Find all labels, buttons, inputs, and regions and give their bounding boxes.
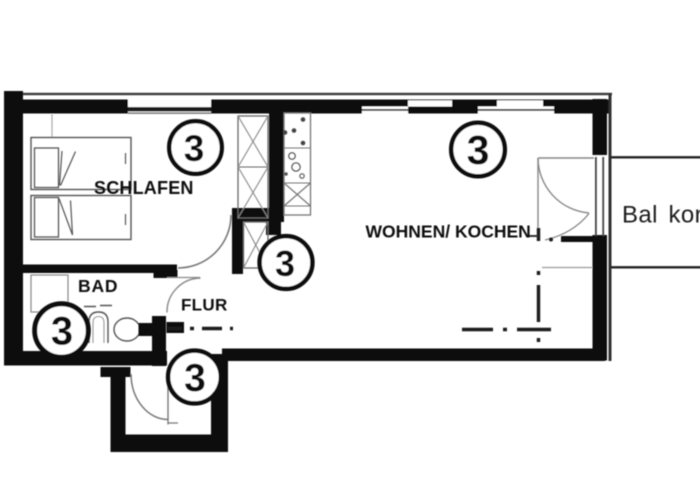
svg-text:BAD: BAD <box>78 276 118 296</box>
svg-text:SCHLAFEN: SCHLAFEN <box>94 178 194 198</box>
svg-text:FLUR: FLUR <box>181 296 228 315</box>
svg-text:WOHNEN/ KOCHEN: WOHNEN/ KOCHEN <box>366 222 531 242</box>
svg-text:3: 3 <box>275 243 295 284</box>
svg-text:3: 3 <box>184 357 206 400</box>
svg-text:3: 3 <box>184 128 205 169</box>
svg-text:3: 3 <box>467 127 490 173</box>
svg-text:3: 3 <box>51 310 73 354</box>
svg-text:Bal kon: Bal kon <box>622 202 700 229</box>
